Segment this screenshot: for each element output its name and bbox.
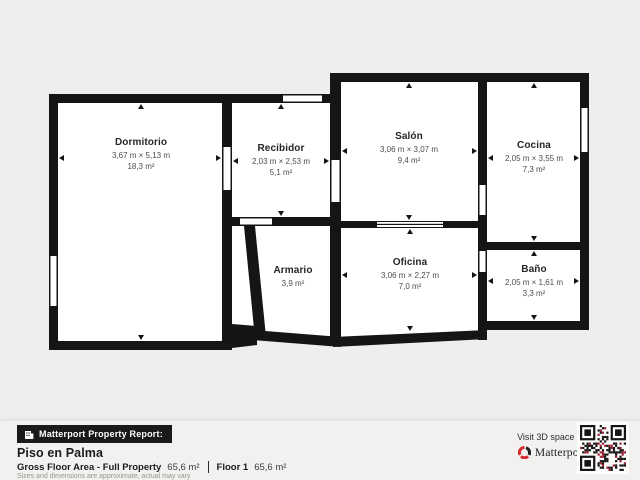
wide-opening-rail (377, 224, 443, 225)
wall (478, 321, 589, 330)
gross-floor-area-label: Gross Floor Area - Full Property (17, 462, 161, 473)
wall (478, 242, 589, 250)
room-floor-recibidor (232, 103, 330, 217)
wall (222, 217, 341, 226)
property-title: Piso en Palma (17, 446, 103, 460)
wall (232, 324, 257, 348)
building-icon (24, 429, 34, 439)
door-opening (240, 219, 272, 225)
room-floor-oficina (341, 228, 478, 338)
wall (330, 73, 589, 82)
window-slot (480, 185, 486, 215)
matterport-logo-icon (518, 446, 531, 459)
floor-plan-area: Dormitorio 3,67 m × 5,13 m 18,3 m² Recib… (0, 0, 640, 420)
room-floor-dormitorio (58, 103, 222, 341)
window-slot (224, 147, 231, 190)
floor-value: 65,6 m² (254, 462, 286, 473)
gross-floor-area-value: 65,6 m² (167, 462, 199, 473)
report-badge: Matterport Property Report: (17, 425, 172, 443)
window-slot (582, 108, 588, 152)
disclaimer-text: Sizes and dimensions are approximate, ac… (17, 473, 191, 480)
floor-label: Floor 1 (217, 462, 249, 473)
matterport-property-report-page: { "colors": { "background": "#efeeec", "… (0, 0, 640, 480)
report-badge-label: Matterport Property Report: (39, 429, 163, 439)
room-floor-bano (487, 250, 580, 321)
room-floors (58, 82, 580, 341)
divider (208, 461, 209, 473)
window-slot (283, 96, 322, 102)
qr-code (577, 422, 629, 474)
floor-plan-svg (0, 0, 640, 420)
room-floor-armario (255, 226, 330, 338)
room-floor-salon (341, 82, 478, 221)
wall (49, 341, 232, 350)
room-floor-cocina (487, 82, 580, 242)
wall (580, 73, 589, 250)
wall (580, 240, 589, 330)
wall (330, 73, 341, 345)
door-opening (480, 251, 486, 272)
report-footer: Matterport Property Report: Piso en Palm… (0, 420, 640, 480)
floor-area-summary: Gross Floor Area - Full Property 65,6 m²… (17, 461, 286, 473)
door-opening (332, 160, 340, 202)
window-slot (51, 256, 57, 306)
wall (49, 94, 58, 350)
